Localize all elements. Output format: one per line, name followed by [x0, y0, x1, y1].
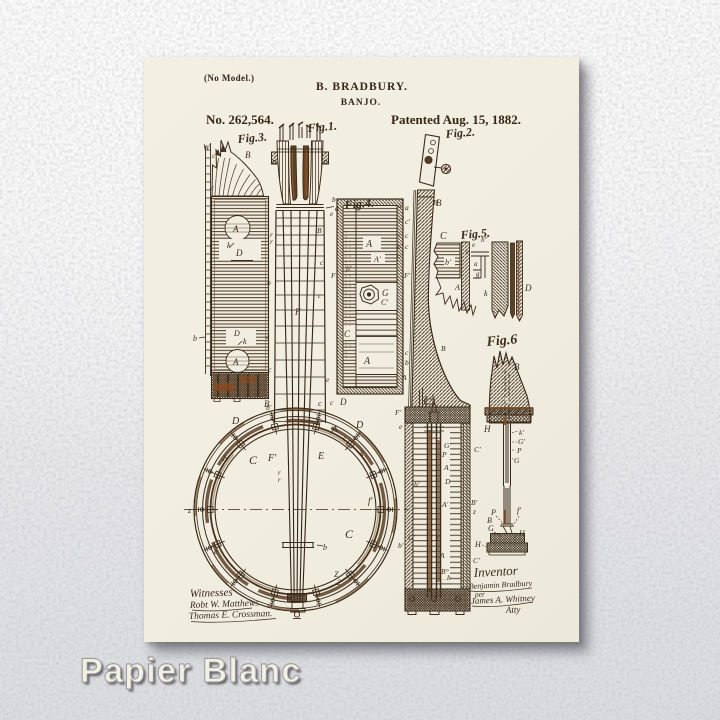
- svg-text:r: r: [270, 237, 273, 246]
- svg-text:c: c: [268, 365, 272, 374]
- svg-text:A: A: [443, 463, 449, 472]
- svg-text:g: g: [476, 270, 480, 278]
- svg-text:Fig.6: Fig.6: [485, 332, 518, 350]
- svg-text:G: G: [514, 456, 520, 465]
- svg-text:D: D: [235, 248, 243, 258]
- svg-text:Fig.3.: Fig.3.: [236, 129, 267, 146]
- svg-text:c: c: [212, 152, 216, 160]
- svg-text:A': A': [441, 500, 449, 509]
- svg-text:C': C': [408, 533, 415, 542]
- svg-text:b': b': [445, 258, 451, 267]
- svg-text:Atty: Atty: [505, 604, 521, 615]
- svg-text:e: e: [326, 375, 330, 384]
- svg-text:A: A: [232, 224, 239, 234]
- svg-text:Inventor: Inventor: [472, 563, 519, 580]
- svg-text:c: c: [405, 348, 409, 357]
- svg-text:D: D: [355, 420, 364, 431]
- svg-text:BANJO.: BANJO.: [341, 98, 382, 108]
- svg-text:e: e: [399, 422, 403, 431]
- svg-text:G: G: [382, 288, 389, 298]
- svg-text:D: D: [524, 283, 532, 293]
- svg-text:Patented Aug. 15, 1882.: Patented Aug. 15, 1882.: [391, 112, 521, 127]
- svg-text:(No Model.): (No Model.): [204, 73, 254, 83]
- svg-text:F: F: [294, 307, 301, 317]
- svg-text:c': c': [399, 215, 404, 224]
- svg-text:D: D: [231, 416, 240, 427]
- svg-text:a: a: [474, 260, 478, 268]
- svg-text:B: B: [514, 362, 520, 372]
- svg-text:C': C': [474, 445, 481, 454]
- svg-text:B: B: [317, 226, 322, 235]
- svg-text:a: a: [405, 203, 409, 212]
- svg-text:P: P: [441, 450, 447, 459]
- svg-text:e: e: [472, 241, 475, 249]
- svg-text:f': f': [368, 496, 374, 506]
- svg-text:b: b: [332, 195, 336, 204]
- svg-text:H: H: [474, 540, 482, 549]
- svg-text:c: c: [405, 231, 409, 240]
- svg-text:c: c: [318, 399, 322, 408]
- svg-text:f': f': [517, 506, 521, 515]
- svg-text:A: A: [331, 424, 338, 434]
- svg-text:F': F': [394, 408, 402, 417]
- svg-text:a: a: [398, 201, 402, 210]
- svg-text:b': b': [346, 264, 352, 273]
- svg-text:Fig.1.: Fig.1.: [306, 118, 337, 135]
- svg-text:Witnesses: Witnesses: [190, 587, 233, 600]
- svg-text:c: c: [266, 332, 270, 341]
- svg-text:k: k: [227, 241, 231, 250]
- svg-text:B: B: [433, 198, 438, 207]
- svg-text:B: B: [264, 399, 270, 409]
- svg-text:F: F: [330, 271, 336, 280]
- svg-text:D: D: [233, 329, 240, 338]
- svg-text:A: A: [401, 373, 407, 382]
- svg-text:h: h: [223, 454, 227, 463]
- svg-text:b: b: [193, 334, 197, 343]
- svg-text:A': A': [373, 255, 381, 264]
- svg-text:b': b': [397, 242, 403, 251]
- svg-text:G': G': [518, 437, 525, 446]
- svg-text:C': C': [473, 556, 480, 565]
- svg-text:D: D: [339, 397, 347, 407]
- svg-text:F': F': [267, 453, 277, 464]
- svg-text:b: b: [323, 543, 327, 552]
- svg-text:E: E: [317, 451, 324, 462]
- svg-text:C': C': [381, 298, 388, 307]
- svg-text:c: c: [405, 242, 409, 251]
- svg-text:c': c': [405, 217, 410, 226]
- svg-text:B. BRADBURY.: B. BRADBURY.: [316, 81, 408, 93]
- svg-text:b': b': [414, 480, 420, 489]
- svg-text:Fig.5.: Fig.5.: [459, 225, 490, 242]
- svg-text:G': G': [444, 441, 451, 450]
- svg-text:A: A: [232, 357, 239, 367]
- svg-text:b: b: [405, 358, 409, 367]
- svg-text:c: c: [320, 258, 324, 267]
- svg-text:r: r: [278, 476, 281, 484]
- svg-text:A: A: [365, 239, 373, 250]
- svg-text:2: 2: [337, 578, 341, 587]
- svg-text:c: c: [343, 434, 347, 443]
- svg-text:h: h: [447, 573, 451, 582]
- svg-text:e: e: [330, 209, 334, 218]
- svg-text:Fig.4.: Fig.4.: [343, 195, 374, 212]
- svg-text:b: b: [267, 278, 271, 287]
- svg-text:F': F': [403, 271, 411, 280]
- svg-text:C: C: [345, 527, 354, 541]
- svg-text:P: P: [516, 446, 522, 455]
- svg-text:B: B: [245, 150, 251, 160]
- svg-text:k: k: [360, 449, 364, 458]
- svg-text:z: z: [187, 506, 192, 515]
- svg-text:c: c: [330, 398, 334, 407]
- svg-text:k: k: [243, 337, 247, 346]
- svg-text:A: A: [439, 551, 445, 560]
- svg-text:k: k: [484, 289, 488, 298]
- svg-text:C: C: [344, 329, 351, 339]
- svg-text:z: z: [472, 507, 476, 516]
- svg-text:c: c: [318, 291, 322, 300]
- svg-text:Fig.2.: Fig.2.: [444, 124, 475, 141]
- svg-text:James A. Whitney: James A. Whitney: [471, 593, 536, 606]
- svg-text:C: C: [249, 453, 258, 467]
- svg-text:B: B: [441, 344, 446, 353]
- svg-text:A: A: [363, 356, 371, 367]
- svg-text:G: G: [488, 524, 494, 533]
- svg-text:A': A': [454, 283, 462, 292]
- svg-text:D: D: [444, 477, 451, 486]
- svg-text:b': b': [398, 541, 404, 550]
- svg-text:e: e: [214, 547, 218, 556]
- svg-text:W: W: [203, 143, 211, 152]
- svg-text:No. 262,564.: No. 262,564.: [206, 112, 274, 127]
- svg-text:k': k': [519, 428, 524, 437]
- svg-text:e: e: [466, 248, 469, 256]
- svg-text:B': B': [471, 498, 478, 507]
- svg-text:H: H: [483, 424, 491, 434]
- svg-text:F: F: [395, 253, 401, 262]
- svg-text:C: C: [440, 231, 447, 242]
